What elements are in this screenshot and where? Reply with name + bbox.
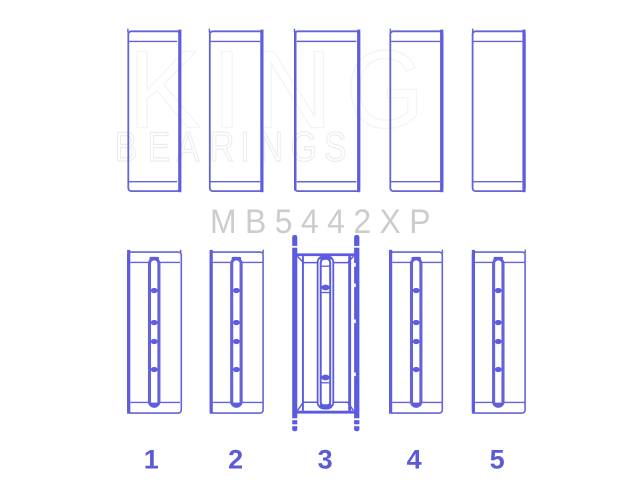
- svg-text:I: I: [240, 125, 249, 171]
- svg-text:4: 4: [407, 445, 422, 475]
- svg-text:1: 1: [144, 445, 159, 475]
- svg-text:MB5442XP: MB5442XP: [210, 203, 439, 241]
- svg-text:R: R: [210, 125, 234, 171]
- svg-text:S: S: [324, 125, 346, 171]
- svg-text:5: 5: [490, 445, 505, 475]
- svg-text:2: 2: [228, 445, 243, 475]
- svg-text:E: E: [148, 125, 170, 171]
- svg-text:3: 3: [318, 445, 333, 475]
- svg-text:B: B: [115, 125, 137, 171]
